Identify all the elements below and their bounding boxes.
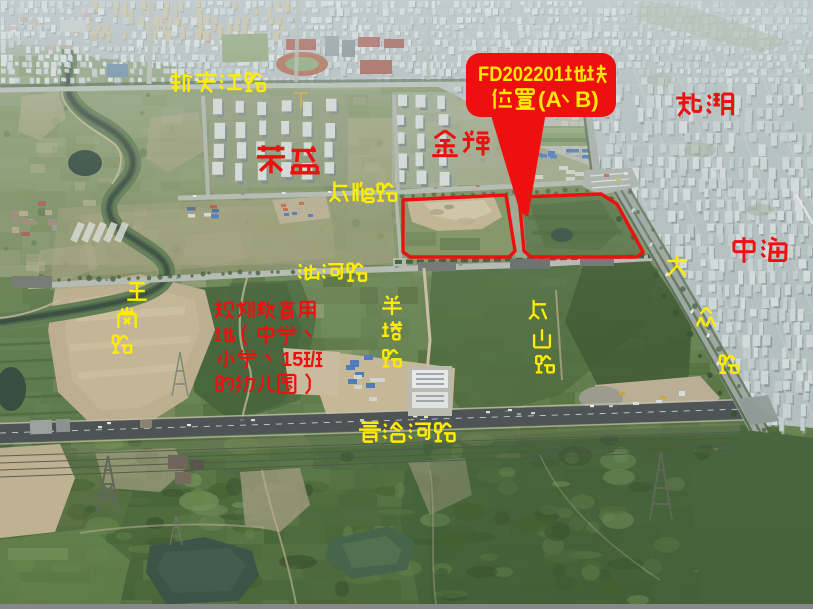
svg-text:15: 15 — [281, 349, 303, 371]
svg-text:B): B) — [575, 87, 599, 112]
svg-text:(A: (A — [538, 87, 562, 112]
svg-text:FD202201: FD202201 — [478, 62, 564, 86]
